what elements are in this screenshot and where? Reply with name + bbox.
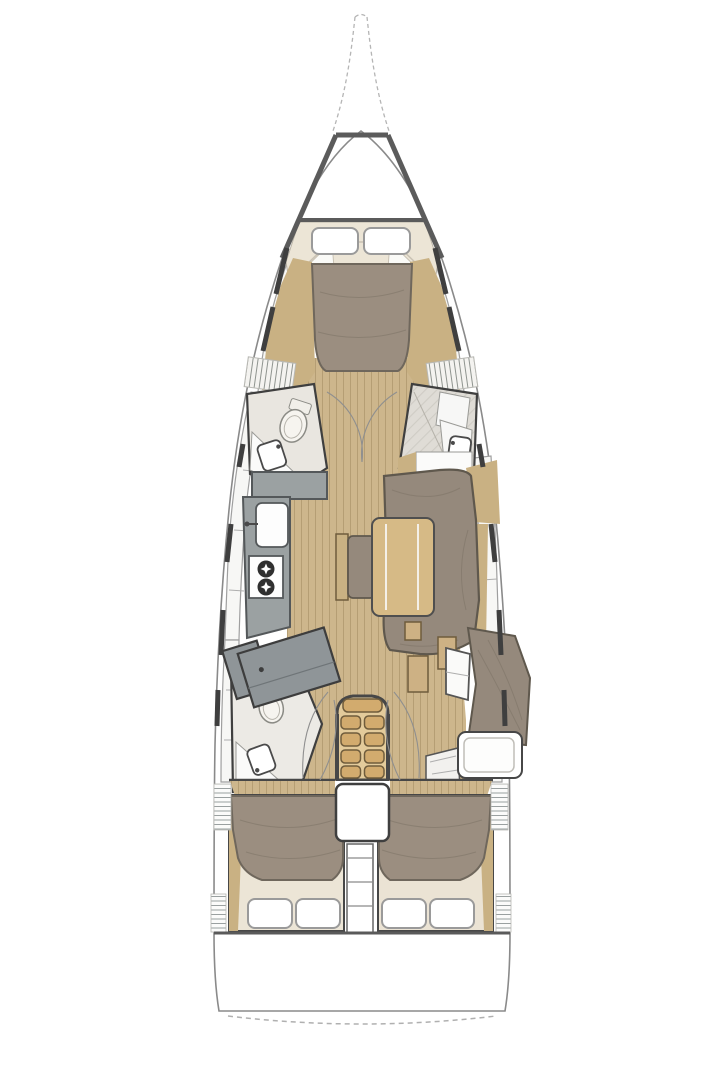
pillow [296, 899, 340, 928]
vent-hatch [214, 784, 231, 830]
galley-sink [256, 503, 288, 547]
engine-hatch [336, 784, 389, 841]
swim-platform-curve [228, 1016, 496, 1024]
dining-table [372, 518, 434, 616]
faucet-knob [245, 522, 250, 527]
duvet [231, 796, 343, 880]
bowsprit-outline [333, 15, 389, 132]
aft-cabin-port [229, 795, 344, 931]
forward-duvet [312, 264, 412, 371]
wood-box [405, 622, 421, 640]
ladder-passage [347, 844, 373, 933]
pillow [364, 228, 410, 254]
pillow [312, 228, 358, 254]
pillow [382, 899, 426, 928]
vent-hatch [211, 894, 226, 932]
aft-cabins [211, 780, 511, 933]
desk-cushion [464, 738, 514, 772]
bench-cushion [348, 536, 375, 598]
pillow [248, 899, 292, 928]
burner-icon [258, 561, 275, 578]
companionway [337, 696, 388, 780]
duvet [379, 796, 491, 880]
wood-box [408, 656, 428, 692]
pillow [430, 899, 474, 928]
forward-cabin [244, 222, 478, 394]
counter-top-bar [252, 472, 327, 499]
bench-wood-edge [336, 534, 348, 600]
vent-hatch [491, 784, 508, 830]
burner-icon [258, 579, 275, 596]
aft-cabin-starboard [378, 795, 493, 931]
floor-plan-canvas [0, 0, 720, 1080]
vent-hatch [496, 894, 511, 932]
yacht-floor-plan [0, 0, 720, 1080]
